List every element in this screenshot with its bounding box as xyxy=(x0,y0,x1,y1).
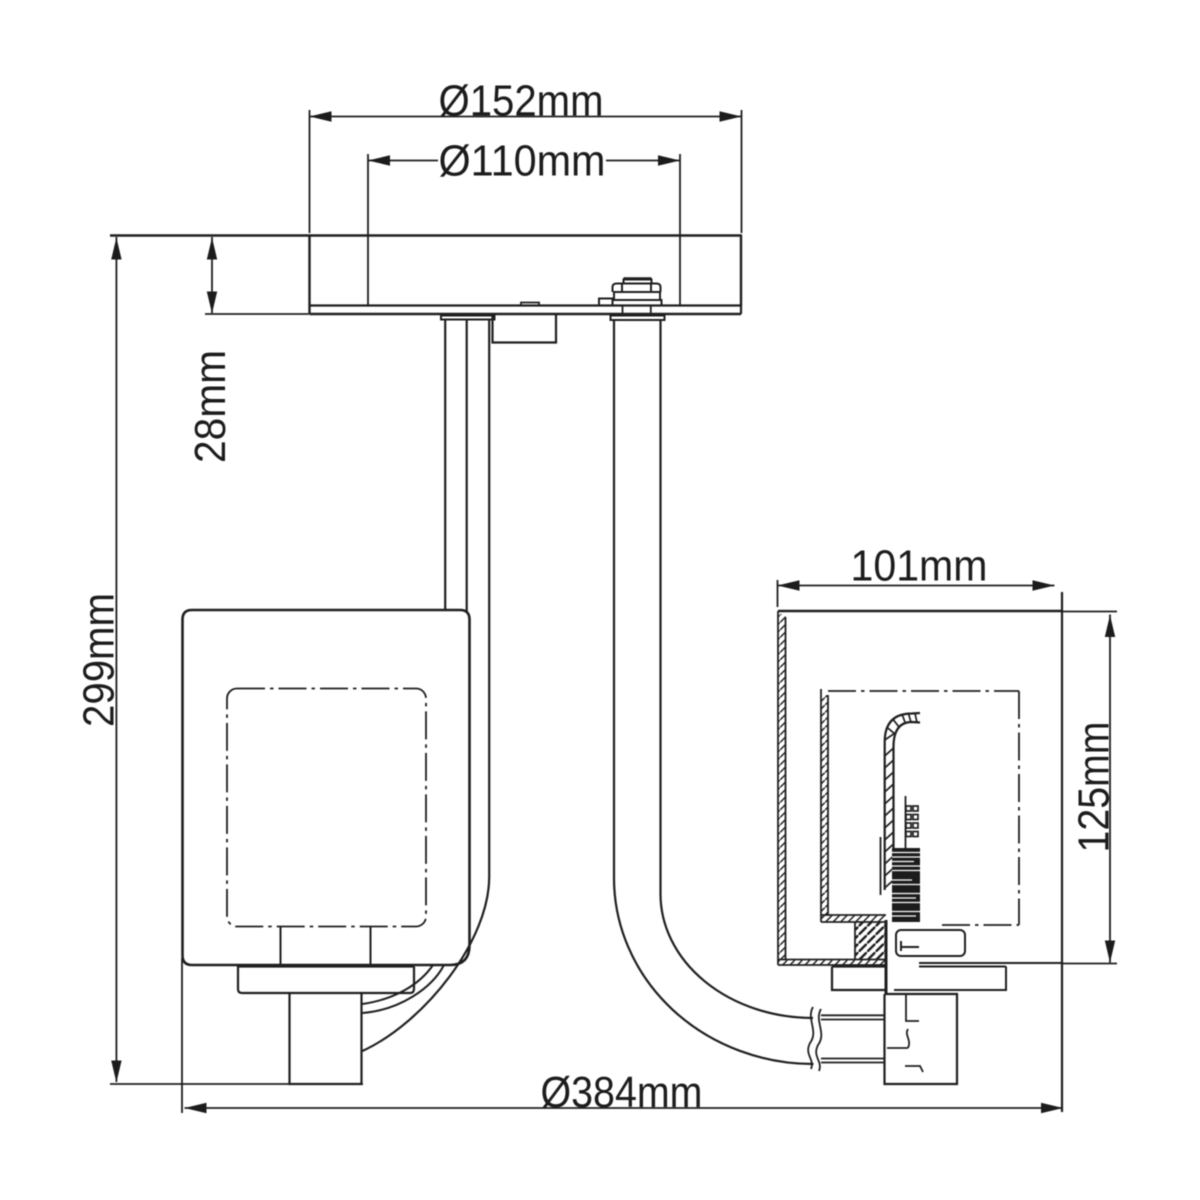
svg-text:Ø110mm: Ø110mm xyxy=(439,137,606,186)
svg-text:Ø384mm: Ø384mm xyxy=(541,1068,703,1117)
svg-text:28mm: 28mm xyxy=(186,350,235,463)
svg-text:299mm: 299mm xyxy=(75,593,124,727)
svg-text:125mm: 125mm xyxy=(1070,722,1119,853)
svg-text:Ø152mm: Ø152mm xyxy=(439,77,604,126)
svg-text:101mm: 101mm xyxy=(851,542,988,591)
